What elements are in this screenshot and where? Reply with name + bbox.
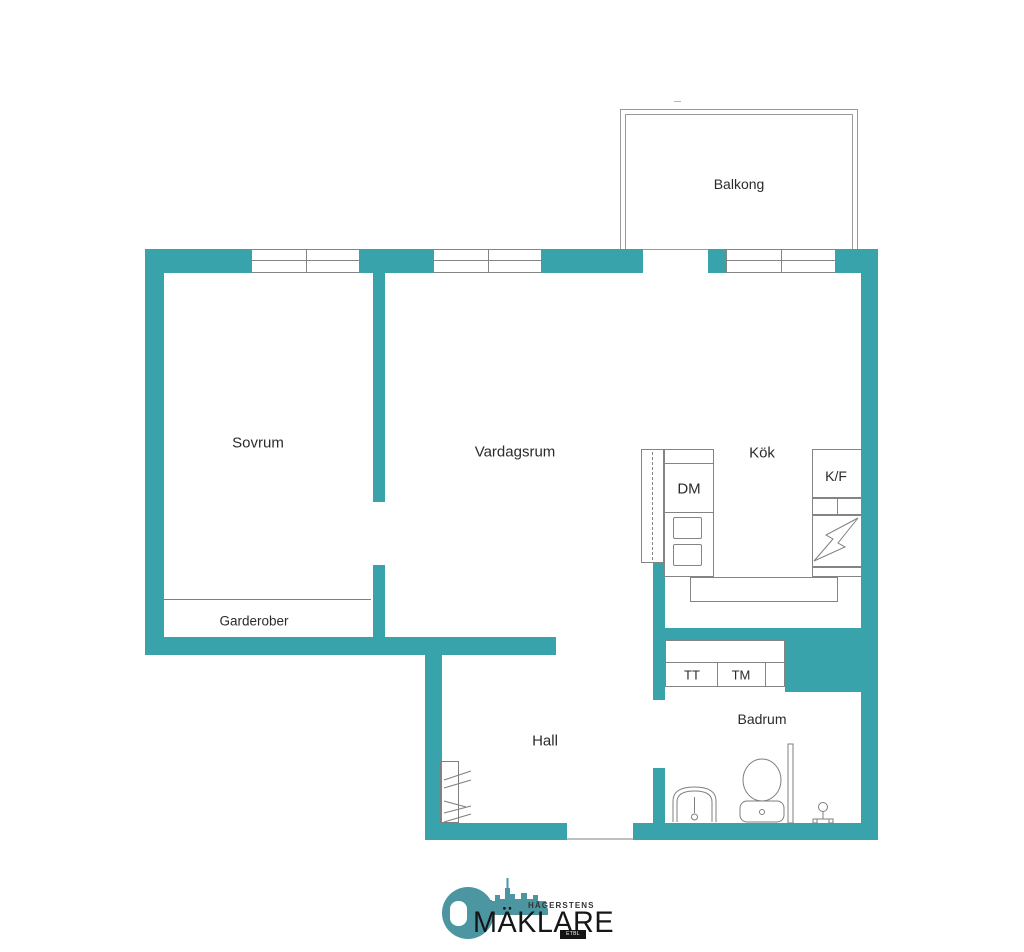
window-divider <box>488 250 489 272</box>
window-livingroom <box>433 249 542 273</box>
room-label-kitchen: Kök <box>749 445 775 462</box>
appliance-label-washer: TM <box>732 668 751 683</box>
stove-sub-row <box>812 567 862 577</box>
wall-top-seg2 <box>360 249 433 273</box>
window-divider <box>781 250 782 272</box>
room-label-bedroom: Sovrum <box>232 435 284 452</box>
room-label-hall: Hall <box>532 733 558 750</box>
laundry-shelf-line <box>666 662 784 663</box>
wall-bottom-left <box>425 823 567 840</box>
north-mark <box>674 101 681 102</box>
wall-bathroom-left-lower <box>653 768 665 823</box>
stove-box <box>812 515 862 567</box>
sink-basin-2 <box>673 544 702 566</box>
wall-bedroom-divider-upper <box>373 273 385 502</box>
wall-left <box>145 249 164 655</box>
wardrobe-hatch-icon <box>441 762 472 823</box>
toilet-icon <box>740 759 784 822</box>
cabinet-divider <box>837 499 838 514</box>
wall-laundry-block <box>785 640 878 692</box>
wall-bathroom-left-upper <box>653 640 665 700</box>
shower-mixer-icon <box>813 803 833 824</box>
wall-right <box>861 249 878 840</box>
counter-line <box>664 463 714 464</box>
room-label-livingroom: Vardagsrum <box>475 444 556 461</box>
wall-top-seg1 <box>145 249 251 273</box>
window-kitchen <box>726 249 836 273</box>
window-divider <box>306 250 307 272</box>
wall-bathroom-top <box>653 628 878 640</box>
appliance-label-fridge-freezer: K/F <box>825 468 847 484</box>
sink-icon <box>673 787 716 822</box>
laundry-unit <box>665 640 785 687</box>
wall-bedroom-bottom <box>145 637 556 655</box>
appliance-label-dryer: TT <box>684 668 700 683</box>
kitchen-bottom-counter <box>690 577 838 602</box>
sink-basin-1 <box>673 517 702 539</box>
wall-hall-left <box>425 655 442 823</box>
laundry-divider <box>717 662 718 687</box>
kitchen-cabinet-dashed-line <box>652 452 653 560</box>
wall-top-seg3 <box>542 249 643 273</box>
room-label-wardrobes: Garderober <box>219 614 288 629</box>
logo-main-text: MÄKLARE <box>473 906 614 940</box>
shower-screen <box>788 744 793 823</box>
appliance-label-dishwasher: DM <box>677 481 700 498</box>
floorplan-canvas: Balkong DM K/F Kök <box>0 0 1024 952</box>
laundry-divider <box>765 662 766 687</box>
counter-line <box>664 512 714 513</box>
room-label-balcony: Balkong <box>714 176 765 192</box>
wall-bottom-right <box>633 823 878 840</box>
logo-established-text: ETBL 1982 <box>560 930 586 939</box>
window-bedroom <box>251 249 360 273</box>
room-label-bathroom: Badrum <box>737 711 786 727</box>
wall-top-seg4 <box>708 249 726 273</box>
